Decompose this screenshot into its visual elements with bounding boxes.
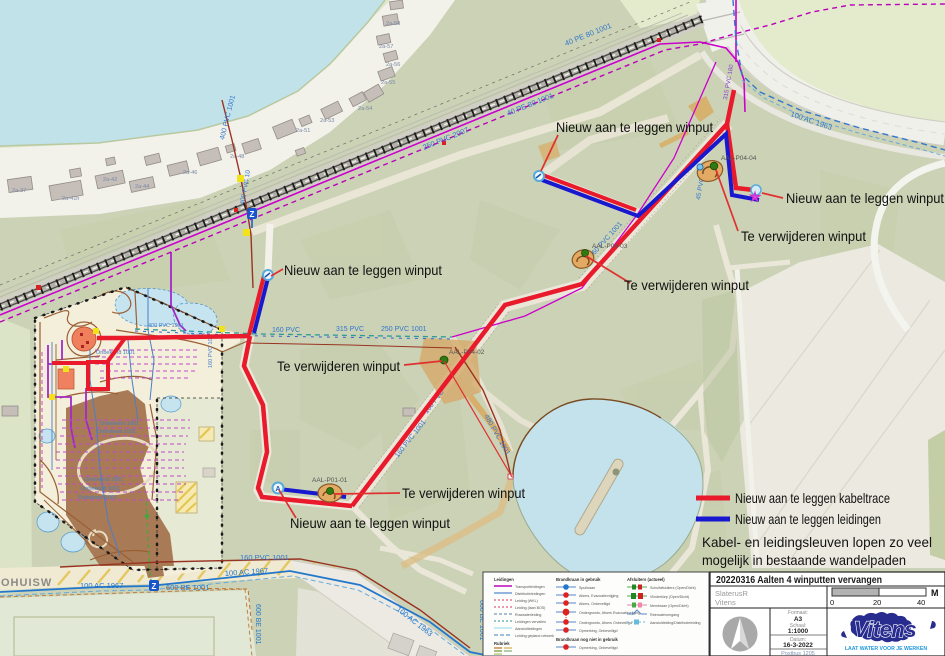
svg-text:2a-58: 2a-58 <box>386 21 400 27</box>
svg-text:Onbekend 1001: Onbekend 1001 <box>81 486 120 492</box>
svg-text:Leiding gepland netwerk: Leiding gepland netwerk <box>515 634 554 638</box>
svg-text:2a-46: 2a-46 <box>183 170 197 176</box>
svg-text:Nieuw aan te leggen winput: Nieuw aan te leggen winput <box>556 120 713 135</box>
svg-text:2a-54: 2a-54 <box>358 106 372 112</box>
svg-text:Leidingen: Leidingen <box>494 577 514 582</box>
svg-text:Nieuw aan te leggen leidingen: Nieuw aan te leggen leidingen <box>735 512 881 527</box>
svg-text:250 PVC 1001: 250 PVC 1001 <box>381 326 427 333</box>
svg-text:Leidingen vervallen: Leidingen vervallen <box>515 620 546 624</box>
svg-text:Ondergronds, Afsers Onbevellig: Ondergronds, Afsers Onbevelligd <box>579 621 632 625</box>
svg-text:2a-42: 2a-42 <box>103 177 117 183</box>
svg-text:Brandkraan nog niet in gebruik: Brandkraan nog niet in gebruik <box>556 637 619 642</box>
svg-text:Afsers, Onbevelligd: Afsers, Onbevelligd <box>579 602 610 606</box>
svg-text:Schuifafsluiters (Open/Dicht): Schuifafsluiters (Open/Dicht) <box>650 586 696 590</box>
svg-text:Nieuw aan te leggen winput: Nieuw aan te leggen winput <box>284 263 442 278</box>
svg-text:20: 20 <box>873 598 881 607</box>
svg-text:Te verwijderen winput: Te verwijderen winput <box>741 229 866 244</box>
svg-text:M: M <box>931 588 939 598</box>
svg-text:Onbekend 1001: Onbekend 1001 <box>78 495 117 501</box>
svg-text:Onbekend 1001: Onbekend 1001 <box>97 429 136 435</box>
svg-text:SlaterusR: SlaterusR <box>715 589 749 598</box>
svg-text:2a-56: 2a-56 <box>386 62 400 68</box>
svg-text:Onbekend 1001: Onbekend 1001 <box>100 421 139 427</box>
svg-text:Transportleidingen: Transportleidingen <box>515 585 545 589</box>
svg-text:2a-44: 2a-44 <box>135 184 149 190</box>
svg-text:100 AC 1967: 100 AC 1967 <box>80 581 123 590</box>
svg-text:160 PVC 1001: 160 PVC 1001 <box>240 553 289 562</box>
svg-text:2a-53: 2a-53 <box>320 118 334 124</box>
svg-text:Vlinderklep (Open/Dicht): Vlinderklep (Open/Dicht) <box>650 595 689 599</box>
svg-text:AAL-P04-02: AAL-P04-02 <box>449 349 485 356</box>
svg-text:Te verwijderen winput: Te verwijderen winput <box>624 278 749 293</box>
svg-text:2a-57: 2a-57 <box>379 44 393 50</box>
svg-text:Onbekend 1001: Onbekend 1001 <box>84 477 123 483</box>
svg-text:Z: Z <box>250 210 255 219</box>
svg-text:1:1000: 1:1000 <box>788 628 809 635</box>
svg-text:400 PVC 1001: 400 PVC 1001 <box>148 323 184 329</box>
svg-text:Brandkraan in gebruik: Brandkraan in gebruik <box>556 577 601 582</box>
svg-text:Ruwwaterleiding: Ruwwaterleiding <box>515 613 541 617</box>
svg-text:0: 0 <box>830 598 834 607</box>
svg-text:Spuikraan: Spuikraan <box>579 586 595 590</box>
svg-text:Nieuw aan te leggen winput: Nieuw aan te leggen winput <box>786 191 944 206</box>
svg-text:Vitens: Vitens <box>715 598 736 607</box>
svg-text:A3: A3 <box>794 616 803 623</box>
svg-text:Opmerking, Onbevelligd: Opmerking, Onbevelligd <box>579 629 618 633</box>
svg-text:Aansluitleidingen: Aansluitleidingen <box>515 627 542 631</box>
svg-text:Vitens: Vitens <box>854 617 916 642</box>
svg-text:AAL-P01-01: AAL-P01-01 <box>312 477 348 484</box>
svg-text:Nieuw aan te leggen winput: Nieuw aan te leggen winput <box>290 516 450 531</box>
svg-text:Leiding (WKL): Leiding (WKL) <box>515 599 538 603</box>
svg-text:20220316 Aalten 4 winputten ve: 20220316 Aalten 4 winputten vervangen <box>716 574 882 586</box>
svg-text:315 PVC: 315 PVC <box>336 326 364 333</box>
svg-text:Te verwijderen winput: Te verwijderen winput <box>277 359 400 374</box>
svg-text:Te verwijderen winput: Te verwijderen winput <box>402 486 525 501</box>
svg-text:Distributieleidingen: Distributieleidingen <box>515 592 545 596</box>
svg-text:Leiding (laan BOS): Leiding (laan BOS) <box>515 606 545 610</box>
svg-text:40: 40 <box>917 598 925 607</box>
svg-text:160 PVC: 160 PVC <box>272 327 300 334</box>
svg-text:Rubriek: Rubriek <box>494 641 510 646</box>
svg-text:2a-41h: 2a-41h <box>62 196 79 202</box>
svg-text:600 BE 1001: 600 BE 1001 <box>254 604 261 645</box>
svg-text:2a-48: 2a-48 <box>230 154 244 160</box>
svg-text:16-3-2022: 16-3-2022 <box>783 642 813 649</box>
svg-text:OHUISW: OHUISW <box>1 577 52 589</box>
svg-text:2a-51: 2a-51 <box>296 128 310 134</box>
svg-text:mogelijk in bestaande wandelpa: mogelijk in bestaande wandelpaden <box>702 553 906 568</box>
svg-text:Reinwateromgang: Reinwateromgang <box>650 613 679 617</box>
svg-text:Kabel- en leidingsleuven lopen: Kabel- en leidingsleuven lopen zo veel <box>702 535 932 550</box>
svg-text:Aansluitleiding/Distributielei: Aansluitleiding/Distributieleiding <box>650 621 701 625</box>
svg-text:2a-37: 2a-37 <box>12 188 26 194</box>
svg-text:LAAT WATER VOOR JE WERKEN: LAAT WATER VOOR JE WERKEN <box>845 646 927 652</box>
svg-text:160 PVC 100: 160 PVC 100 <box>208 335 214 368</box>
svg-text:600 BE 1001: 600 BE 1001 <box>166 583 209 592</box>
svg-text:Postbus 1205: Postbus 1205 <box>781 651 815 656</box>
svg-text:AAL-P04-04: AAL-P04-04 <box>721 155 757 162</box>
svg-text:2a-55: 2a-55 <box>381 80 395 86</box>
svg-text:Afsluiters (actueel): Afsluiters (actueel) <box>627 577 665 582</box>
svg-text:Afsers, Evacuatievrijging: Afsers, Evacuatievrijging <box>579 594 618 598</box>
svg-text:Opmerking, Onbevelligd: Opmerking, Onbevelligd <box>579 646 618 650</box>
svg-text:AAL-P04-03: AAL-P04-03 <box>592 243 628 250</box>
svg-text:Membraan (Open/Dicht): Membraan (Open/Dicht) <box>650 604 689 608</box>
svg-text:Z: Z <box>152 582 157 591</box>
svg-text:Nieuw aan te leggen kabeltrace: Nieuw aan te leggen kabeltrace <box>735 491 890 506</box>
